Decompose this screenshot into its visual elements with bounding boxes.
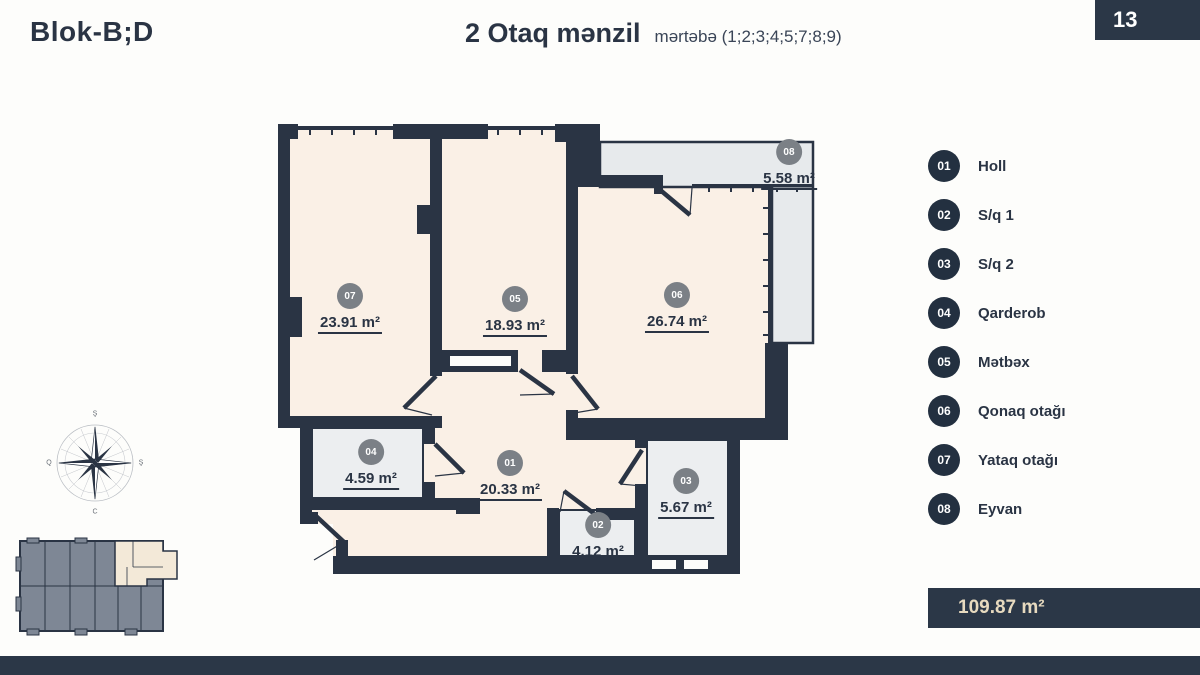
block-title: Blok-B;D xyxy=(30,16,154,48)
room-badge-07: 07 xyxy=(337,283,363,309)
compass-east-label: Ş xyxy=(139,460,144,467)
room-area-04: 4.59 m² xyxy=(343,470,399,490)
room-badge-01: 01 xyxy=(497,450,523,476)
room-label-02: 02 4.12 m² xyxy=(570,512,626,563)
legend-badge: 04 xyxy=(928,297,960,329)
legend-label: Holl xyxy=(978,158,1006,175)
legend-label: S/q 1 xyxy=(978,207,1014,224)
room-area-02: 4.12 m² xyxy=(570,543,626,563)
legend-label: Qarderob xyxy=(978,305,1046,322)
room-label-04: 04 4.59 m² xyxy=(343,439,399,490)
room-area-07: 23.91 m² xyxy=(318,314,382,334)
room-label-08: 08 5.58 m² xyxy=(761,139,817,190)
page-number: 13 xyxy=(1113,7,1137,33)
room-badge-08: 08 xyxy=(776,139,802,165)
room-badge-06: 06 xyxy=(664,282,690,308)
legend-badge: 07 xyxy=(928,444,960,476)
compass-south-label: C xyxy=(92,509,97,516)
legend-badge: 01 xyxy=(928,150,960,182)
key-plan-drawing xyxy=(15,537,185,637)
legend-item-sq2: 03 S/q 2 xyxy=(928,248,1066,280)
compass-north-label: Ş xyxy=(93,411,98,418)
room-area-01: 20.33 m² xyxy=(478,481,542,501)
footer-bar xyxy=(0,656,1200,675)
room-label-07: 07 23.91 m² xyxy=(318,283,382,334)
room-badge-04: 04 xyxy=(358,439,384,465)
legend-badge: 06 xyxy=(928,395,960,427)
legend-label: Yataq otağı xyxy=(978,452,1058,469)
header-title-group: 2 Otaq mənzil mərtəbə (1;2;3;4;5;7;8;9) xyxy=(465,18,842,49)
floor-plan: 07 23.91 m² 05 18.93 m² 06 26.74 m² 08 5… xyxy=(278,112,823,582)
room-badge-02: 02 xyxy=(585,512,611,538)
room-area-06: 26.74 m² xyxy=(645,313,709,333)
compass-icon xyxy=(45,410,145,516)
legend-badge: 05 xyxy=(928,346,960,378)
room-badge-03: 03 xyxy=(673,468,699,494)
legend-item-qarderob: 04 Qarderob xyxy=(928,297,1066,329)
room-area-05: 18.93 m² xyxy=(483,317,547,337)
legend-label: Mətbəx xyxy=(978,354,1030,371)
legend-item-holl: 01 Holl xyxy=(928,150,1066,182)
legend-badge: 02 xyxy=(928,199,960,231)
legend-badge: 03 xyxy=(928,248,960,280)
legend-badge: 08 xyxy=(928,493,960,525)
room-label-03: 03 5.67 m² xyxy=(658,468,714,519)
legend-item-metbex: 05 Mətbəx xyxy=(928,346,1066,378)
page-title: 2 Otaq mənzil xyxy=(465,18,641,49)
floor-plan-drawing xyxy=(278,112,823,582)
room-legend: 01 Holl 02 S/q 1 03 S/q 2 04 Qarderob 05… xyxy=(928,150,1066,525)
legend-label: S/q 2 xyxy=(978,256,1014,273)
floor-list: mərtəbə (1;2;3;4;5;7;8;9) xyxy=(655,27,842,47)
total-area-value: 109.87 m² xyxy=(958,597,1045,619)
legend-item-yataq-otagi: 07 Yataq otağı xyxy=(928,444,1066,476)
legend-item-eyvan: 08 Eyvan xyxy=(928,493,1066,525)
page-number-badge: 13 xyxy=(1095,0,1200,40)
key-plan-highlighted-unit xyxy=(115,541,177,586)
compass-west-label: Q xyxy=(46,460,51,467)
room-label-01: 01 20.33 m² xyxy=(478,450,542,501)
legend-label: Eyvan xyxy=(978,501,1022,518)
legend-item-qonaq-otagi: 06 Qonaq otağı xyxy=(928,395,1066,427)
legend-label: Qonaq otağı xyxy=(978,403,1066,420)
total-area-box: 109.87 m² xyxy=(928,588,1200,628)
floor-plan-page: Blok-B;D 2 Otaq mənzil mərtəbə (1;2;3;4;… xyxy=(0,0,1200,675)
compass-rose: Ş Ş C Q xyxy=(45,410,145,516)
room-area-08: 5.58 m² xyxy=(761,170,817,190)
room-label-06: 06 26.74 m² xyxy=(645,282,709,333)
key-plan-thumbnail xyxy=(15,537,185,637)
room-label-05: 05 18.93 m² xyxy=(483,286,547,337)
room-area-03: 5.67 m² xyxy=(658,499,714,519)
room-badge-05: 05 xyxy=(502,286,528,312)
legend-item-sq1: 02 S/q 1 xyxy=(928,199,1066,231)
